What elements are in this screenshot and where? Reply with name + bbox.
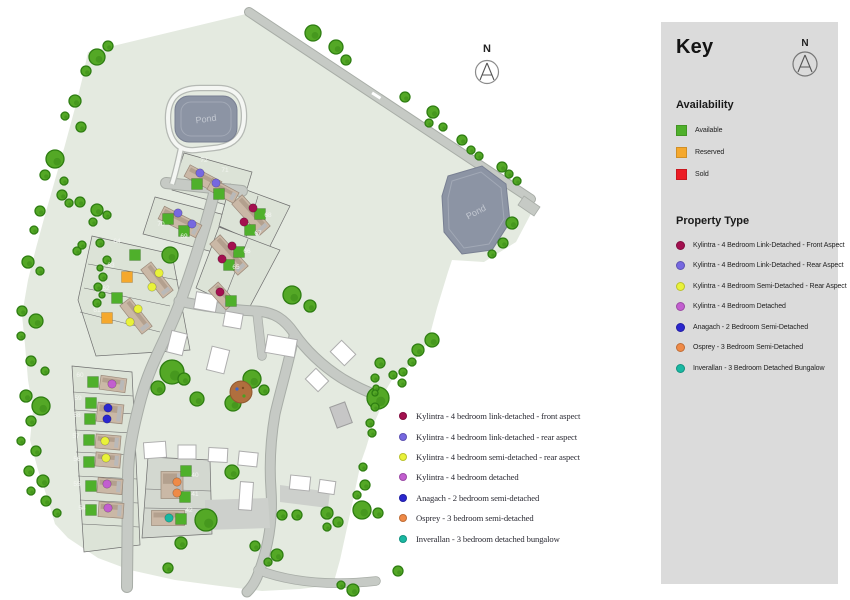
property-type-label: Kylintra - 4 Bedroom Detached (693, 303, 786, 310)
property-type-list: Kylintra - 4 Bedroom Link-Detached - Fro… (674, 235, 825, 379)
property-type-dot (676, 302, 685, 311)
tree-icon (17, 306, 27, 316)
property-type-dot (676, 364, 685, 373)
tree-icon (24, 466, 34, 476)
property-type-label: Kylintra - 4 Bedroom Link-Detached - Rea… (693, 262, 843, 269)
availability-label: Reserved (695, 149, 724, 156)
tree-icon (31, 446, 41, 456)
property-type-dot[interactable] (173, 478, 181, 486)
availability-swatch (676, 169, 687, 180)
property-type-item: Kylintra - 4 Bedroom Detached (674, 297, 825, 318)
legend-dot-icon (399, 514, 407, 522)
tree-icon (94, 283, 102, 291)
legend-dot-icon (399, 535, 407, 543)
map-legend-item: Kylintra - 4 bedroom link-detached - fro… (399, 406, 589, 426)
property-type-dot[interactable] (173, 489, 181, 497)
tree-icon (321, 507, 333, 519)
plot-number: 56 (73, 456, 81, 463)
availability-square[interactable] (86, 481, 97, 492)
property-type-dot (676, 282, 685, 291)
property-type-dot[interactable] (196, 169, 204, 177)
property-type-item: Kylintra - 4 Bedroom Link-Detached - Rea… (674, 256, 825, 277)
availability-square[interactable] (181, 466, 192, 477)
plot-number: 41 (191, 491, 199, 498)
property-type-dot (676, 343, 685, 352)
availability-square[interactable] (176, 514, 187, 525)
availability-swatch (676, 147, 687, 158)
property-type-dot[interactable] (240, 218, 248, 226)
property-type-dot[interactable] (101, 437, 109, 445)
tree-icon (425, 333, 439, 347)
tree-icon (41, 367, 49, 375)
plot-number: 58 (73, 412, 81, 419)
tree-icon (32, 397, 50, 415)
tree-icon (373, 508, 383, 518)
availability-square[interactable] (226, 296, 237, 307)
property-type-dot[interactable] (218, 255, 226, 263)
legend-dot-icon (399, 494, 407, 502)
tree-icon (329, 40, 343, 54)
map-legend-item: Kylintra - 4 bedroom semi-detached - rea… (399, 447, 589, 467)
existing-house (239, 482, 254, 511)
availability-swatch (676, 125, 687, 136)
tree-icon (103, 41, 113, 51)
tree-icon (372, 390, 378, 396)
tree-icon (337, 581, 345, 589)
tree-icon (30, 226, 38, 234)
availability-square[interactable] (85, 414, 96, 425)
property-type-dot[interactable] (103, 480, 111, 488)
property-type-dot[interactable] (126, 318, 134, 326)
property-type-item: Osprey - 3 Bedroom Semi-Detached (674, 338, 825, 359)
site-plan-page: Pond Pond 727170696867666564636261605958… (0, 0, 850, 600)
tree-icon (35, 206, 45, 216)
tree-icon (368, 429, 376, 437)
legend-text: Anagach - 2 bedroom semi-detached (416, 493, 539, 503)
plot-number: 54 (78, 505, 86, 512)
existing-house (143, 441, 166, 458)
property-type-label: Inverallan - 3 Bedroom Detached Bungalow (693, 365, 824, 372)
tree-icon (360, 480, 370, 490)
pond-1: Pond (175, 96, 237, 142)
tree-icon (412, 344, 424, 356)
tree-icon (46, 150, 64, 168)
tree-icon (371, 403, 379, 411)
plot-number: 55 (73, 481, 81, 488)
tree-icon (89, 218, 97, 226)
tree-icon (89, 49, 105, 65)
property-type-dot[interactable] (165, 514, 173, 522)
plot-number: 69 (180, 233, 188, 240)
plot-number: 64 (113, 238, 121, 245)
tree-icon (305, 25, 321, 41)
tree-icon (359, 463, 367, 471)
availability-square[interactable] (192, 179, 203, 190)
tree-icon (292, 510, 302, 520)
legend-text: Kylintra - 4 bedroom semi-detached - rea… (416, 452, 580, 462)
property-type-dot[interactable] (103, 415, 111, 423)
tree-icon (27, 487, 35, 495)
plot-number: 66 (243, 248, 251, 255)
tree-icon (22, 256, 34, 268)
tree-icon (93, 299, 101, 307)
property-type-dot[interactable] (216, 288, 224, 296)
property-type-item: Kylintra - 4 Bedroom Semi-Detached - Rea… (674, 276, 825, 297)
tree-icon (225, 465, 239, 479)
tree-icon (400, 92, 410, 102)
property-type-label: Anagach - 2 Bedroom Semi-Detached (693, 324, 808, 331)
tree-icon (488, 250, 496, 258)
tree-icon (398, 379, 406, 387)
availability-square[interactable] (214, 189, 225, 200)
availability-square[interactable] (84, 457, 95, 468)
tree-icon (513, 177, 521, 185)
tree-icon (439, 123, 447, 131)
tree-icon (333, 517, 343, 527)
existing-house (178, 445, 196, 459)
tree-icon (163, 563, 173, 573)
tree-icon (264, 558, 272, 566)
plot-number: 59 (74, 395, 82, 402)
tree-icon (475, 152, 483, 160)
property-type-item: Anagach - 2 Bedroom Semi-Detached (674, 317, 825, 338)
tree-icon (69, 95, 81, 107)
tree-icon (304, 300, 316, 312)
tree-icon (75, 197, 85, 207)
tree-icon (17, 332, 25, 340)
property-type-dot (676, 323, 685, 332)
existing-house (318, 479, 336, 494)
legend-dot-icon (399, 412, 407, 420)
property-type-label: Kylintra - 4 Bedroom Semi-Detached - Rea… (693, 283, 847, 290)
tree-icon (97, 265, 103, 271)
tree-icon (497, 162, 507, 172)
plot-number: 68 (264, 212, 272, 219)
plot-number: 61 (93, 307, 101, 314)
tree-icon (162, 247, 178, 263)
availability-square[interactable] (122, 272, 133, 283)
availability-square[interactable] (88, 377, 99, 388)
tree-icon (425, 119, 433, 127)
compass-icon (791, 50, 819, 78)
tree-icon (347, 584, 359, 596)
tree-icon (29, 314, 43, 328)
play-area (230, 381, 252, 403)
tree-icon (399, 368, 407, 376)
map-legend-item: Osprey - 3 bedroom semi-detached (399, 508, 589, 528)
svg-text:N: N (483, 43, 491, 55)
map-north-arrow: N (476, 43, 499, 84)
tree-icon (353, 501, 371, 519)
tree-icon (81, 66, 91, 76)
plot-number: 42 (185, 507, 193, 514)
tree-icon (283, 286, 301, 304)
tree-icon (195, 509, 217, 531)
tree-icon (341, 55, 351, 65)
property-type-dot (676, 241, 685, 250)
plot-number: 65 (232, 264, 240, 271)
tree-icon (323, 523, 331, 531)
tree-icon (17, 437, 25, 445)
tree-icon (371, 374, 379, 382)
property-type-dot[interactable] (134, 305, 142, 313)
plot-number: 62 (102, 285, 110, 292)
tree-icon (259, 385, 269, 395)
tree-icon (96, 239, 104, 247)
property-type-dot[interactable] (249, 204, 257, 212)
legend-dot-icon (399, 453, 407, 461)
property-type-dot[interactable] (174, 209, 182, 217)
tree-icon (498, 238, 508, 248)
tree-icon (37, 475, 49, 487)
plot-number: 70 (157, 221, 165, 228)
tree-icon (366, 419, 374, 427)
availability-square[interactable] (102, 313, 113, 324)
tree-icon (26, 356, 36, 366)
key-north-arrow: N (788, 38, 822, 83)
north-label: N (788, 38, 822, 49)
availability-list: AvailableReservedSold (674, 119, 825, 185)
tree-icon (427, 106, 439, 118)
tree-icon (277, 510, 287, 520)
availability-label: Sold (695, 171, 709, 178)
legend-dot-icon (399, 473, 407, 481)
property-type-dot[interactable] (212, 179, 220, 187)
property-type-dot[interactable] (104, 404, 112, 412)
map-legend-item: Anagach - 2 bedroom semi-detached (399, 488, 589, 508)
existing-house (208, 448, 228, 463)
tree-icon (76, 122, 86, 132)
tree-icon (26, 416, 36, 426)
tree-icon (389, 371, 397, 379)
tree-icon (40, 170, 50, 180)
tree-icon (61, 112, 69, 120)
legend-text: Kylintra - 4 bedroom detached (416, 472, 519, 482)
tree-icon (60, 177, 68, 185)
tree-icon (57, 190, 67, 200)
availability-heading: Availability (676, 99, 825, 111)
legend-text: Kylintra - 4 bedroom link-detached - fro… (416, 411, 580, 421)
tree-icon (41, 496, 51, 506)
existing-house (238, 451, 258, 467)
tree-icon (467, 146, 475, 154)
plot-number: 63 (107, 262, 115, 269)
tree-icon (99, 292, 105, 298)
availability-square[interactable] (112, 293, 123, 304)
tree-icon (73, 247, 81, 255)
tree-icon (20, 390, 32, 402)
plot-number: 57 (72, 433, 80, 440)
tree-icon (393, 566, 403, 576)
tree-icon (353, 491, 361, 499)
tree-icon (36, 267, 44, 275)
tree-icon (250, 541, 260, 551)
legend-dot-icon (399, 433, 407, 441)
availability-item: Reserved (674, 141, 825, 163)
property-type-dot[interactable] (155, 269, 163, 277)
availability-item: Sold (674, 163, 825, 185)
availability-square[interactable] (130, 250, 141, 261)
tree-icon (408, 358, 416, 366)
plot-number: 72 (200, 157, 208, 164)
property-type-label: Kylintra - 4 Bedroom Link-Detached - Fro… (693, 242, 845, 249)
tree-icon (151, 381, 165, 395)
tree-icon (375, 358, 385, 368)
property-type-dot[interactable] (228, 242, 236, 250)
tree-icon (65, 199, 73, 207)
property-type-label: Osprey - 3 Bedroom Semi-Detached (693, 344, 803, 351)
map-legend: Kylintra - 4 bedroom link-detached - fro… (399, 406, 589, 549)
map-legend-item: Kylintra - 4 bedroom link-detached - rea… (399, 426, 589, 446)
property-type-dot[interactable] (148, 283, 156, 291)
tree-icon (178, 373, 190, 385)
property-type-item: Kylintra - 4 Bedroom Link-Detached - Fro… (674, 235, 825, 256)
tree-icon (91, 204, 103, 216)
tree-icon (175, 537, 187, 549)
plot-number: 67 (254, 230, 262, 237)
property-type-dot[interactable] (108, 380, 116, 388)
tree-icon (271, 549, 283, 561)
plot-number: 40 (191, 472, 199, 479)
property-type-dot[interactable] (104, 504, 112, 512)
availability-square[interactable] (86, 505, 97, 516)
legend-text: Kylintra - 4 bedroom link-detached - rea… (416, 432, 577, 442)
map-legend-item: Inverallan - 3 bedroom detached bungalow (399, 528, 589, 548)
existing-house (223, 311, 243, 329)
property-type-dot (676, 261, 685, 270)
availability-square[interactable] (84, 435, 95, 446)
availability-square[interactable] (86, 398, 97, 409)
tree-icon (99, 273, 107, 281)
tree-icon (190, 392, 204, 406)
tree-icon (53, 509, 61, 517)
legend-text: Inverallan - 3 bedroom detached bungalow (416, 534, 560, 544)
availability-item: Available (674, 119, 825, 141)
tree-icon (505, 170, 513, 178)
property-type-heading: Property Type (676, 215, 825, 227)
availability-label: Available (695, 127, 722, 134)
tree-icon (457, 135, 467, 145)
property-type-item: Inverallan - 3 Bedroom Detached Bungalow (674, 358, 825, 379)
map-legend-item: Kylintra - 4 bedroom detached (399, 467, 589, 487)
tree-icon (506, 217, 518, 229)
property-type-dot[interactable] (102, 454, 110, 462)
property-type-dot[interactable] (188, 220, 196, 228)
legend-text: Osprey - 3 bedroom semi-detached (416, 513, 534, 523)
plot-number: 71 (221, 167, 229, 174)
plot-number: 60 (76, 372, 84, 379)
key-panel: Key N Availability AvailableReservedSold… (661, 22, 838, 584)
existing-house (289, 475, 310, 491)
tree-icon (103, 211, 111, 219)
